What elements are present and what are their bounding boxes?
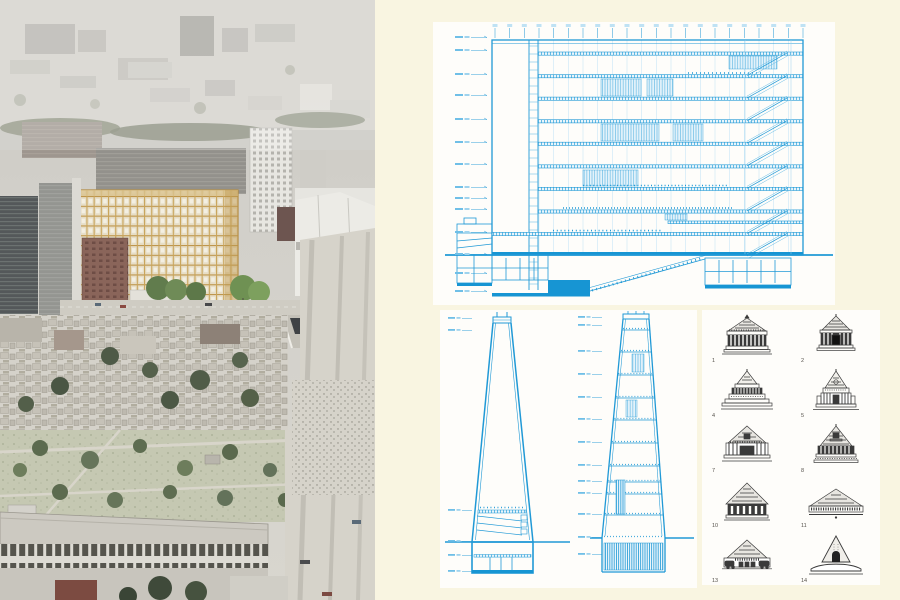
- precedent-item: 7: [702, 424, 791, 479]
- tower-sections-panel: [440, 310, 697, 588]
- column-grid-ticks: [493, 24, 806, 38]
- tower-left-section: [445, 312, 570, 573]
- precedent-item: 2: [791, 314, 880, 369]
- precedent-item: 13: [702, 534, 791, 589]
- tower-right-level-markers: [578, 316, 602, 555]
- ramp: [590, 256, 705, 292]
- precedent-number: 4: [712, 413, 715, 419]
- warehouse: [0, 512, 288, 600]
- photo-haze-overlay: [0, 0, 375, 150]
- building-section-drawing: [433, 22, 835, 305]
- precedent-number: 5: [801, 413, 804, 419]
- precedent-item: 8: [791, 424, 880, 479]
- tower-sections-drawing: [440, 310, 697, 588]
- precedent-item: 14: [791, 534, 880, 589]
- precedent-item: 10: [702, 479, 791, 534]
- precedent-item: 5: [791, 369, 880, 424]
- neighbourhood-houses: [0, 315, 288, 433]
- mausoleum-sketch-icon: [807, 534, 865, 578]
- precedent-number: 8: [801, 468, 804, 474]
- interior-details: [553, 73, 763, 231]
- left-annex: [457, 218, 492, 286]
- mausoleum-sketch-icon: [718, 369, 776, 413]
- mausoleum-sketch-icon: [807, 479, 865, 523]
- precedent-number: 2: [801, 358, 804, 364]
- mausoleum-sketch-icon: [718, 534, 776, 578]
- escalators: [745, 40, 791, 258]
- aerial-site-photo: [0, 0, 375, 600]
- mausoleum-sketch-icon: [718, 479, 776, 523]
- precedent-sketches-panel: 1 2: [702, 310, 880, 585]
- level-markers: [455, 36, 487, 292]
- presentation-board: 1 2: [0, 0, 900, 600]
- precedent-number: 1: [712, 358, 715, 364]
- precedent-number: 14: [801, 578, 807, 584]
- precedent-number: 11: [801, 523, 807, 529]
- precedent-item: 1: [702, 314, 791, 369]
- aerial-photo-illustration: [0, 0, 375, 600]
- basement-right: [705, 258, 791, 289]
- precedent-item: 11: [791, 479, 880, 534]
- mausoleum-sketch-icon: [718, 424, 776, 468]
- mausoleum-sketch-icon: [718, 314, 776, 358]
- tower-right-section: [590, 311, 694, 572]
- precedent-number: 7: [712, 468, 715, 474]
- basement-left: [492, 255, 590, 297]
- mausoleum-sketch-icon: [807, 314, 865, 358]
- precedent-number: 10: [712, 523, 718, 529]
- mausoleum-sketch-icon: [807, 424, 865, 468]
- precedent-item: 4: [702, 369, 791, 424]
- tower-left-level-markers: [448, 317, 472, 572]
- left-dark-towers: [0, 178, 81, 315]
- mausoleum-sketch-icon: [807, 369, 865, 413]
- building-section-panel: [433, 22, 835, 305]
- precedent-number: 13: [712, 578, 718, 584]
- precedent-grid: 1 2: [702, 310, 880, 589]
